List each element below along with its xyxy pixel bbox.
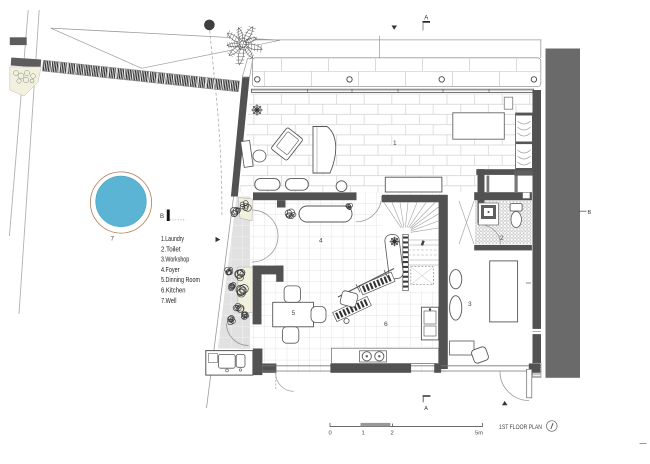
svg-text:5: 5 — [292, 310, 296, 317]
svg-text:2: 2 — [500, 235, 504, 242]
svg-text:A: A — [424, 16, 428, 22]
svg-text:4: 4 — [319, 238, 323, 245]
svg-text:4.Foyer: 4.Foyer — [161, 267, 180, 274]
svg-text:5m: 5m — [475, 431, 483, 437]
svg-text:7.Well: 7.Well — [161, 298, 177, 305]
svg-text:1: 1 — [393, 140, 397, 147]
svg-text:2: 2 — [391, 431, 394, 437]
svg-text:6: 6 — [384, 321, 388, 328]
svg-text:1ST FLOOR PLAN: 1ST FLOOR PLAN — [499, 424, 542, 431]
svg-text:3.Workshop: 3.Workshop — [161, 257, 189, 264]
svg-text:0: 0 — [329, 431, 332, 437]
svg-text:1.Laundry: 1.Laundry — [161, 236, 184, 243]
svg-text:5.Dinning Room: 5.Dinning Room — [161, 277, 200, 284]
svg-text:2.Toilet: 2.Toilet — [161, 246, 181, 253]
svg-text:1: 1 — [362, 431, 365, 437]
svg-text:3: 3 — [468, 301, 472, 308]
svg-text:A: A — [424, 406, 428, 412]
svg-text:B: B — [160, 214, 164, 220]
svg-text:B: B — [588, 210, 592, 216]
svg-text:7: 7 — [111, 236, 115, 243]
svg-text:6.Kitchen: 6.Kitchen — [161, 288, 186, 295]
